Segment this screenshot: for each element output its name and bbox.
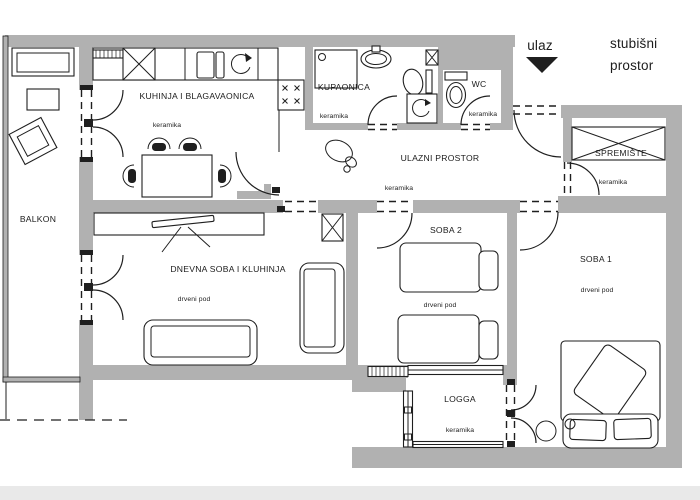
label-entry-hall: ULAZNI PROSTOR (401, 153, 480, 163)
label-bedroom1-floor: drveni pod (581, 287, 614, 294)
kitchen-sink (197, 52, 224, 78)
label-entrance: ulaz (527, 38, 553, 53)
label-loggia: LOGGA (444, 394, 476, 404)
floor-plan-drawing: ulaz stubišni prostor BALKON KUHINJA I B… (0, 0, 700, 500)
radiator-bedroom2 (368, 367, 408, 377)
label-stairwell-1: stubišni (610, 36, 657, 51)
kitchen-cabinet-icon (123, 48, 155, 80)
label-living-room: DNEVNA SOBA I KLUHINJA (170, 264, 285, 274)
radiator-kitchen (93, 50, 123, 58)
label-balcony: BALKON (20, 214, 56, 224)
vent-shaft-bathroom (426, 50, 438, 65)
stove (278, 80, 304, 110)
window-loggia-bottom (413, 442, 503, 448)
dining-table (142, 155, 212, 197)
photo-edge (0, 486, 700, 500)
washing-machine (407, 94, 437, 123)
label-stairwell-2: prostor (610, 58, 654, 73)
armchair (300, 263, 344, 353)
toilet-wc (445, 72, 467, 108)
pillow (614, 418, 652, 439)
label-loggia-floor: keramika (446, 427, 474, 434)
label-kitchen: KUHINJA I BLAGAVAONICA (139, 91, 254, 101)
double-bed (561, 341, 660, 448)
label-storage: SPREMIŠTE (595, 148, 647, 158)
label-wc-floor: keramika (469, 111, 497, 118)
label-bedroom1: SOBA 1 (580, 254, 612, 264)
label-wc: WC (472, 79, 487, 89)
single-bed-2 (398, 315, 498, 363)
label-living-room-floor: drveni pod (178, 296, 211, 303)
balcony-table (27, 89, 59, 110)
sofa (144, 320, 257, 365)
label-bedroom2: SOBA 2 (430, 225, 462, 235)
window-loggia-left (404, 391, 413, 447)
label-bathroom: KUPAONICA (318, 82, 370, 92)
label-bathroom-floor: keramika (320, 113, 348, 120)
window-bedroom2-loggia (408, 366, 503, 375)
toilet-cistern (426, 70, 432, 93)
label-kitchen-floor: keramika (153, 122, 181, 129)
label-storage-floor: keramika (599, 179, 627, 186)
vent-shaft-living (322, 214, 343, 241)
label-bedroom2-floor: drveni pod (424, 302, 457, 309)
balcony-bench (12, 48, 74, 76)
floor-plan: ulaz stubišni prostor BALKON KUHINJA I B… (0, 0, 700, 500)
label-entry-hall-floor: keramika (385, 185, 413, 192)
